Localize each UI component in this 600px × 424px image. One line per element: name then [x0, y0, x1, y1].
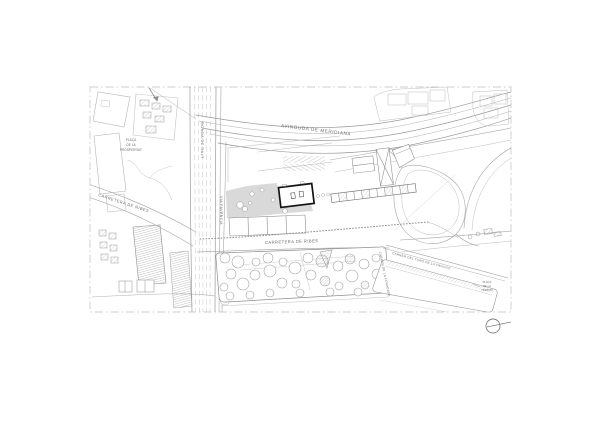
placa-prosperitat-line2: DE LA	[126, 143, 136, 147]
street-label-via-favencia: VIA FAVÈNCIA	[219, 196, 224, 225]
area-label-placa-prosperitat: PLAÇA DE LA PROSPERITAT	[120, 138, 142, 152]
placa-trinitat-line2: DE LA	[483, 284, 491, 288]
canopy-strip	[229, 215, 306, 236]
building-courtyard-2	[299, 191, 304, 197]
placa-trinitat-line1: PLAÇA	[483, 280, 492, 284]
placa-prosperitat-line3: PROSPERITAT	[120, 148, 142, 152]
striped-building-west	[133, 225, 166, 285]
street-label-carretera-de-ribes: CARRETERA DE RIBES	[265, 238, 319, 245]
map-content: PLAÇA DE LA PROSPERITAT CARRETERA DE RIB…	[88, 87, 511, 316]
east-road-furniture	[468, 229, 501, 239]
east-site-buildings	[351, 144, 417, 189]
site-plan-svg: PLAÇA DE LA PROSPERITAT CARRETERA DE RIB…	[0, 0, 600, 424]
southwest-small-buildings	[119, 280, 154, 292]
placa-prosperitat-line1: PLAÇA	[126, 138, 137, 142]
road-arrow-icon	[149, 88, 159, 102]
placa-trinitat-line3: TRINITAT	[481, 288, 493, 292]
stall-trees	[317, 193, 330, 198]
street-label-avinguda-meridiana: AVINGUDA DE MERIDIANA	[281, 123, 352, 137]
ribes-east-connector	[428, 222, 458, 238]
drawing-sheet: PLAÇA DE LA PROSPERITAT CARRETERA DE RIB…	[0, 0, 600, 424]
market-stalls	[331, 184, 416, 203]
east-roads-and-ramp	[330, 128, 511, 252]
orientation-icon	[486, 319, 511, 333]
ronda-lane-lines	[195, 87, 211, 312]
building-courtyard-1	[291, 193, 296, 199]
northeast-blocks	[374, 87, 509, 126]
street-label-ronda-de-dalt: RONDA DE DALT	[200, 122, 204, 159]
project-building	[278, 181, 314, 208]
striped-building-southwest	[170, 251, 192, 308]
